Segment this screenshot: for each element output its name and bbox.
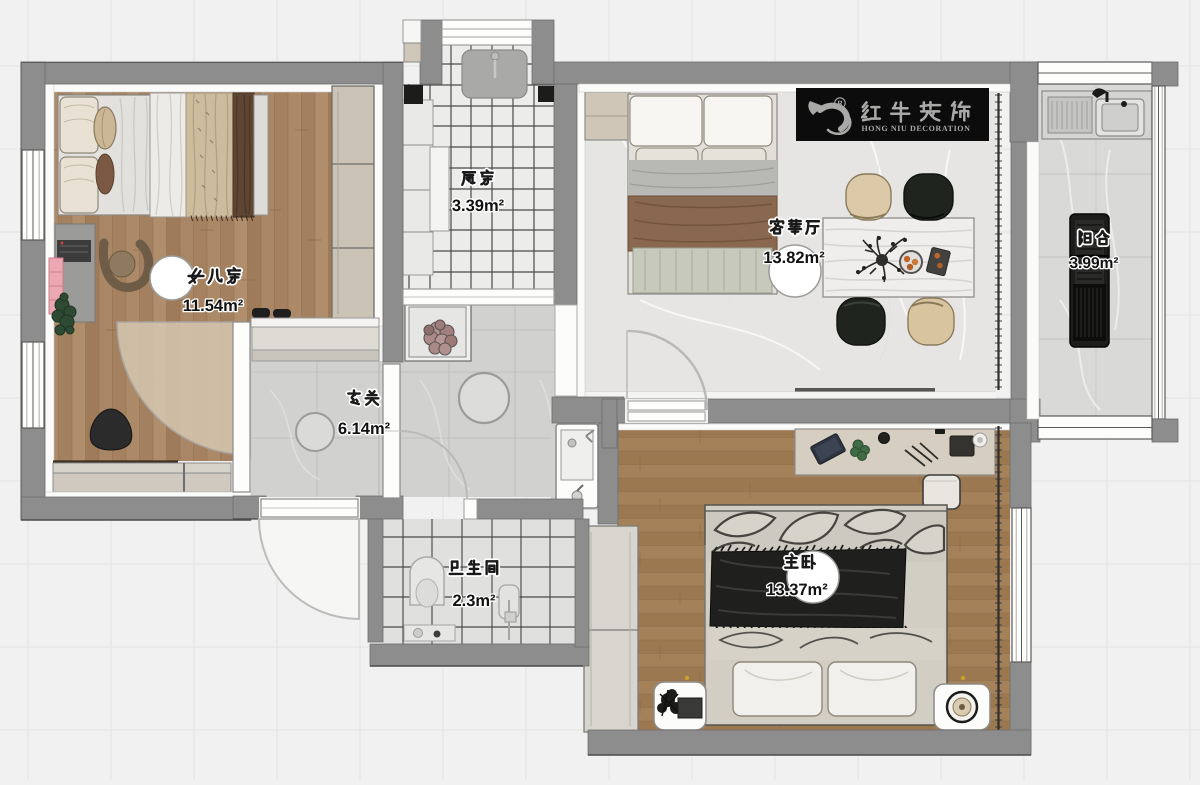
svg-text:13.82m²: 13.82m²	[763, 249, 825, 267]
svg-text:6.14m²: 6.14m²	[338, 420, 391, 438]
svg-text:3.39m²: 3.39m²	[452, 197, 505, 215]
svg-text:11.54m²: 11.54m²	[183, 297, 244, 315]
svg-text:HONG NIU DECORATION: HONG NIU DECORATION	[861, 124, 970, 133]
svg-text:2.3m²: 2.3m²	[452, 592, 496, 610]
svg-text:3.99m²: 3.99m²	[1069, 255, 1118, 272]
svg-text:R: R	[837, 101, 842, 108]
svg-text:13.37m²: 13.37m²	[766, 581, 828, 599]
